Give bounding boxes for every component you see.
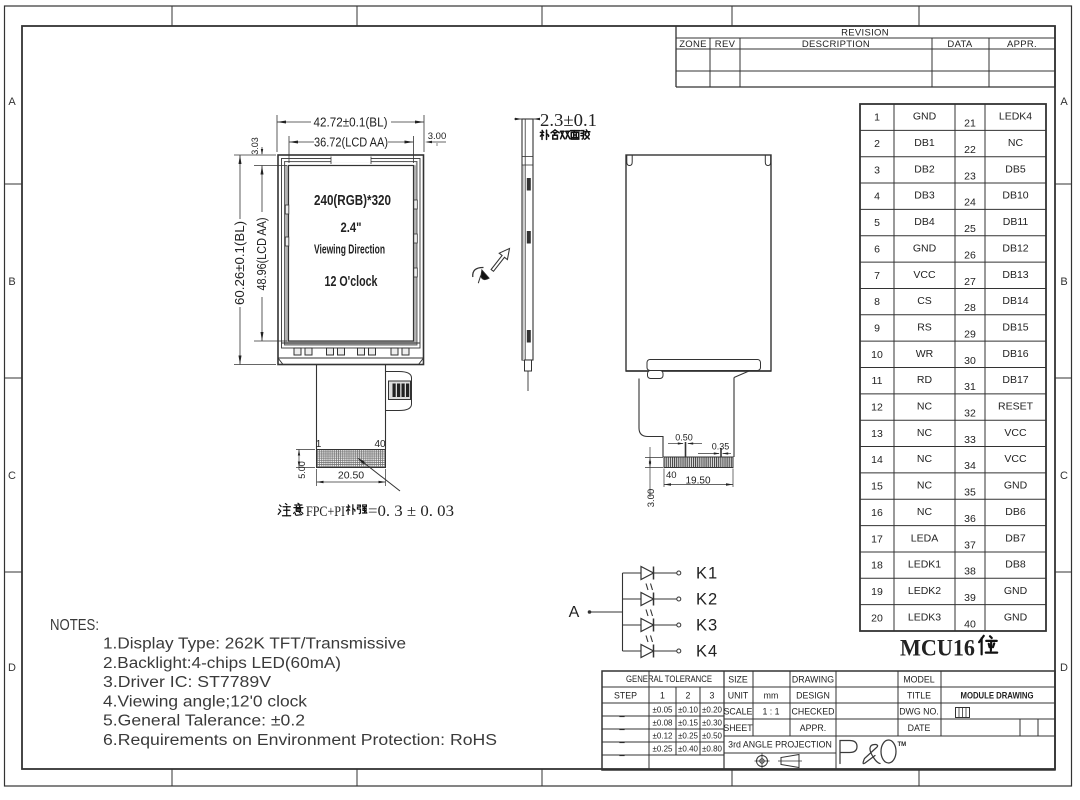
svg-text:NC: NC — [917, 453, 933, 465]
svg-text:0.50: 0.50 — [675, 433, 693, 443]
svg-text:LEDK2: LEDK2 — [908, 585, 941, 597]
svg-text:17: 17 — [871, 533, 883, 545]
svg-text:34: 34 — [964, 460, 976, 472]
svg-text:VCC: VCC — [1004, 427, 1027, 439]
svg-text:4: 4 — [874, 191, 880, 203]
svg-text:DATA: DATA — [947, 39, 972, 50]
svg-text:GENERAL TOLERANCE: GENERAL TOLERANCE — [626, 674, 712, 684]
svg-text:DB14: DB14 — [1002, 295, 1028, 307]
svg-text:3.00: 3.00 — [646, 489, 657, 508]
svg-text:9: 9 — [874, 322, 880, 334]
svg-text:=0. 3 ± 0. 03: =0. 3 ± 0. 03 — [368, 503, 454, 520]
svg-text:22: 22 — [964, 144, 976, 156]
svg-text:36: 36 — [964, 513, 976, 525]
svg-text:1 : 1: 1 : 1 — [762, 707, 779, 717]
svg-text:LEDK3: LEDK3 — [908, 611, 941, 623]
svg-text:3.03: 3.03 — [250, 137, 260, 155]
svg-text:30: 30 — [964, 355, 976, 367]
svg-text:19.50: 19.50 — [685, 476, 710, 487]
svg-text:K4: K4 — [696, 643, 718, 661]
svg-text:FPC+PI: FPC+PI — [306, 504, 345, 520]
svg-text:±0.50: ±0.50 — [702, 732, 723, 741]
svg-text:RD: RD — [917, 374, 933, 386]
svg-text:SIZE: SIZE — [728, 675, 748, 685]
svg-text:3.00: 3.00 — [428, 131, 447, 142]
svg-text:2.3±0.1: 2.3±0.1 — [540, 110, 597, 130]
svg-text:29: 29 — [964, 328, 976, 340]
svg-text:SHEET: SHEET — [723, 723, 753, 733]
svg-text:REV: REV — [715, 39, 736, 50]
svg-text:8: 8 — [874, 296, 880, 308]
svg-text:DRAWING: DRAWING — [792, 675, 834, 685]
svg-text:CHECKED: CHECKED — [791, 707, 834, 717]
svg-text:RS: RS — [917, 321, 932, 333]
svg-text:48.96(LCD AA): 48.96(LCD AA) — [255, 218, 269, 291]
svg-text:37: 37 — [964, 539, 976, 551]
svg-text:C: C — [8, 470, 16, 482]
svg-text:28: 28 — [964, 302, 976, 314]
svg-text:SCALE: SCALE — [724, 707, 753, 717]
svg-text:APPR.: APPR. — [800, 723, 826, 733]
svg-text:NC: NC — [917, 506, 933, 518]
svg-text:TITLE: TITLE — [907, 691, 931, 701]
svg-text:±0.25: ±0.25 — [653, 745, 674, 754]
svg-text:1: 1 — [660, 691, 665, 701]
svg-text:18: 18 — [871, 560, 883, 572]
svg-text:DESCRIPTION: DESCRIPTION — [802, 39, 870, 50]
svg-text:MODEL: MODEL — [903, 675, 934, 685]
svg-text:35: 35 — [964, 487, 976, 499]
svg-text:19: 19 — [871, 586, 883, 598]
svg-text:3rd ANGLE PROJECTION: 3rd ANGLE PROJECTION — [728, 740, 832, 750]
svg-text:A: A — [569, 604, 580, 621]
svg-text:±0.05: ±0.05 — [653, 706, 674, 715]
svg-text:NC: NC — [917, 401, 933, 413]
svg-text:K3: K3 — [696, 617, 718, 635]
svg-text:27: 27 — [964, 276, 976, 288]
svg-text:DESIGN: DESIGN — [796, 691, 830, 701]
svg-text:5.00: 5.00 — [297, 461, 307, 479]
svg-text:21: 21 — [964, 118, 976, 130]
svg-text:DATE: DATE — [908, 723, 931, 733]
svg-text:±0.25: ±0.25 — [678, 732, 699, 741]
svg-text:DB10: DB10 — [1002, 190, 1028, 202]
svg-text:26: 26 — [964, 249, 976, 261]
svg-text:DB1: DB1 — [914, 137, 935, 149]
svg-text:38: 38 — [964, 566, 976, 578]
svg-text:12 O'clock: 12 O'clock — [325, 274, 379, 290]
svg-text:B: B — [8, 276, 15, 288]
svg-text:GND: GND — [913, 111, 937, 123]
svg-text:DB2: DB2 — [914, 163, 935, 175]
svg-text:DB6: DB6 — [1005, 506, 1026, 518]
svg-text:240(RGB)*320: 240(RGB)*320 — [314, 192, 391, 209]
svg-text:39: 39 — [964, 592, 976, 604]
svg-text:2.Backlight:4-chips LED(60mA): 2.Backlight:4-chips LED(60mA) — [103, 655, 341, 672]
svg-text:31: 31 — [964, 381, 976, 393]
svg-text:DB4: DB4 — [914, 216, 935, 228]
svg-text:MCU16: MCU16 — [900, 636, 975, 662]
svg-text:DB7: DB7 — [1005, 532, 1026, 544]
svg-text:LEDK4: LEDK4 — [999, 111, 1032, 123]
svg-text:VCC: VCC — [913, 269, 936, 281]
svg-text:20.50: 20.50 — [338, 470, 364, 482]
svg-text:12: 12 — [871, 402, 883, 414]
svg-text:40: 40 — [666, 470, 677, 481]
svg-text:LEDA: LEDA — [911, 532, 938, 544]
svg-text:13: 13 — [871, 428, 883, 440]
svg-text:5: 5 — [874, 217, 880, 229]
svg-text:33: 33 — [964, 434, 976, 446]
svg-text:mm: mm — [764, 691, 779, 701]
svg-text:NC: NC — [917, 480, 933, 492]
svg-text:GND: GND — [1004, 611, 1028, 623]
svg-text:±0.12: ±0.12 — [653, 732, 674, 741]
svg-text:CS: CS — [917, 295, 932, 307]
svg-text:DWG NO.: DWG NO. — [899, 707, 939, 717]
svg-text:16: 16 — [871, 507, 883, 519]
svg-text:UNIT: UNIT — [728, 691, 749, 701]
svg-text:1: 1 — [874, 112, 880, 124]
svg-text:DB13: DB13 — [1002, 269, 1028, 281]
svg-text:D: D — [8, 662, 16, 674]
svg-text:DB17: DB17 — [1002, 374, 1028, 386]
svg-text:Viewing Direction: Viewing Direction — [314, 242, 385, 257]
svg-text:5.General Talerance: ±0.2: 5.General Talerance: ±0.2 — [103, 713, 305, 730]
svg-text:2.4": 2.4" — [341, 219, 362, 235]
svg-text:6: 6 — [874, 243, 880, 255]
svg-text:11: 11 — [872, 375, 883, 387]
svg-text:±0.10: ±0.10 — [678, 706, 699, 715]
svg-text:DB15: DB15 — [1002, 321, 1028, 333]
svg-text:D: D — [1060, 662, 1068, 674]
svg-text:_: _ — [618, 733, 625, 743]
svg-text:K2: K2 — [696, 591, 718, 609]
svg-text:DB12: DB12 — [1002, 242, 1028, 254]
svg-text:ZONE: ZONE — [679, 39, 707, 50]
svg-text:60.26±0.1(BL): 60.26±0.1(BL) — [233, 221, 247, 305]
svg-text:GND: GND — [1004, 480, 1028, 492]
svg-text:_: _ — [618, 707, 625, 717]
svg-text:GND: GND — [913, 242, 937, 254]
svg-text:3: 3 — [874, 164, 880, 176]
svg-text:RESET: RESET — [998, 401, 1034, 413]
svg-text:3: 3 — [710, 691, 715, 701]
svg-text:25: 25 — [964, 223, 976, 235]
svg-text:B: B — [1060, 276, 1067, 288]
svg-text:±0.15: ±0.15 — [678, 719, 699, 728]
svg-text:14: 14 — [871, 454, 883, 466]
svg-text:APPR.: APPR. — [1007, 39, 1037, 50]
svg-text:C: C — [1060, 470, 1068, 482]
svg-text:DB5: DB5 — [1005, 163, 1026, 175]
svg-text:K1: K1 — [696, 565, 718, 583]
svg-text:23: 23 — [964, 170, 976, 182]
svg-text:WR: WR — [916, 348, 934, 360]
svg-text:_: _ — [618, 720, 625, 730]
svg-text:±0.08: ±0.08 — [653, 719, 674, 728]
svg-text:REVISION: REVISION — [841, 28, 889, 39]
svg-text:2: 2 — [686, 691, 691, 701]
svg-text:1: 1 — [316, 439, 322, 450]
svg-text:NC: NC — [917, 427, 933, 439]
svg-text:3.Driver IC: ST7789V: 3.Driver IC: ST7789V — [103, 674, 272, 691]
svg-text:MODULE DRAWING: MODULE DRAWING — [961, 691, 1034, 701]
svg-text:GND: GND — [1004, 585, 1028, 597]
svg-text:32: 32 — [964, 408, 976, 420]
svg-text:DB8: DB8 — [1005, 559, 1026, 571]
svg-text:7: 7 — [874, 270, 880, 282]
svg-text:4.Viewing angle;12'0 clock: 4.Viewing angle;12'0 clock — [103, 693, 307, 710]
svg-text:0.35: 0.35 — [712, 442, 730, 452]
svg-text:A: A — [1060, 96, 1068, 108]
svg-text:6.Requirements on Environment: 6.Requirements on Environment Protection… — [103, 732, 497, 749]
svg-text:DB11: DB11 — [1003, 216, 1029, 228]
svg-text:NOTES:: NOTES: — [50, 617, 99, 634]
svg-text:STEP: STEP — [614, 691, 637, 701]
svg-text:20: 20 — [871, 612, 883, 624]
svg-text:1.Display Type: 262K TFT/Trans: 1.Display Type: 262K TFT/Transmissive — [103, 636, 406, 653]
svg-text:±0.30: ±0.30 — [702, 719, 723, 728]
svg-text:DB3: DB3 — [914, 190, 935, 202]
svg-text:LEDK1: LEDK1 — [908, 559, 941, 571]
svg-text:24: 24 — [964, 197, 976, 209]
svg-text:42.72±0.1(BL): 42.72±0.1(BL) — [314, 116, 388, 130]
svg-text:40: 40 — [374, 439, 386, 450]
svg-text:±0.40: ±0.40 — [678, 745, 699, 754]
svg-text:40: 40 — [964, 618, 976, 630]
svg-text:TM: TM — [898, 742, 907, 748]
svg-text:15: 15 — [871, 481, 883, 493]
svg-text:36.72(LCD AA): 36.72(LCD AA) — [314, 136, 388, 150]
svg-text:_: _ — [618, 746, 625, 756]
svg-text:10: 10 — [871, 349, 883, 361]
svg-text:VCC: VCC — [1004, 453, 1027, 465]
svg-text:2: 2 — [874, 138, 880, 150]
svg-text:A: A — [8, 96, 16, 108]
svg-text:NC: NC — [1008, 137, 1024, 149]
svg-text:±0.20: ±0.20 — [702, 706, 723, 715]
svg-text:±0.80: ±0.80 — [702, 745, 723, 754]
svg-text:DB16: DB16 — [1002, 348, 1028, 360]
